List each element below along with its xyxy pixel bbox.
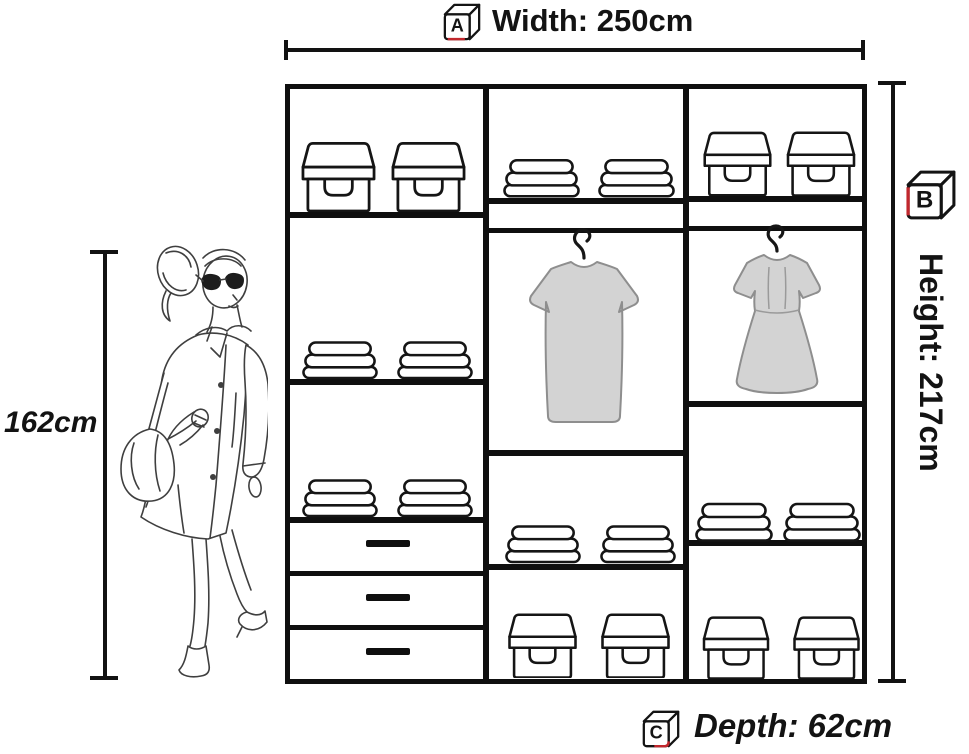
folded-clothes-stack — [600, 524, 676, 564]
cube-a-letter: A — [451, 16, 464, 36]
drawer-divider — [290, 625, 483, 630]
storage-box — [598, 612, 673, 678]
width-dimension-tick-right — [861, 40, 865, 60]
folded-clothes-stack — [598, 158, 675, 198]
folded-clothes-stack — [302, 478, 378, 518]
hanging-dress-flared — [722, 221, 832, 402]
drawer-handle[interactable] — [366, 594, 410, 601]
height-dimension-tick-bottom — [878, 679, 906, 683]
storage-box — [702, 130, 773, 196]
folded-clothes-stack — [695, 502, 773, 542]
depth-label: Depth: 62cm — [694, 707, 892, 745]
shelf — [290, 212, 483, 218]
wardrobe-divider — [683, 89, 689, 679]
folded-clothes-stack — [302, 340, 378, 380]
height-dimension-tick-top — [878, 81, 906, 85]
folded-clothes-stack — [505, 524, 581, 564]
width-dimension-tick-left — [284, 40, 288, 60]
person-sketch — [108, 233, 268, 679]
folded-clothes-stack — [397, 478, 473, 518]
storage-box — [300, 140, 377, 212]
storage-box — [784, 130, 858, 196]
height-label: Height: 217cm — [912, 253, 949, 472]
drawer-handle[interactable] — [366, 648, 410, 655]
person-height-label: 162cm — [4, 406, 97, 440]
cube-c-icon: C — [640, 708, 682, 750]
cube-b-icon: B — [903, 168, 959, 222]
width-label: Width: 250cm — [492, 3, 693, 39]
storage-box — [506, 612, 579, 678]
folded-clothes-stack — [503, 158, 580, 198]
drawer-divider — [290, 571, 483, 576]
wardrobe-outline — [285, 84, 867, 684]
cube-c-letter: C — [650, 723, 663, 743]
storage-box — [390, 140, 467, 212]
shelf — [489, 450, 683, 456]
drawer-handle[interactable] — [366, 540, 410, 547]
wardrobe-dimensions-diagram: A Width: 250cm — [0, 0, 969, 754]
shelf — [489, 198, 683, 204]
width-dimension-line — [285, 48, 864, 52]
cube-a-icon: A — [441, 2, 483, 42]
wardrobe-divider — [483, 89, 489, 679]
hanging-dress-straight — [524, 222, 644, 428]
storage-box — [790, 615, 863, 679]
folded-clothes-stack — [783, 502, 861, 542]
folded-clothes-stack — [397, 340, 473, 380]
height-dimension-line — [891, 83, 895, 683]
handbag — [121, 429, 174, 501]
storage-box — [700, 615, 772, 679]
cube-b-letter: B — [916, 187, 933, 214]
shelf — [489, 564, 683, 570]
person-height-dimension-line — [103, 252, 107, 680]
shelf — [689, 196, 862, 202]
